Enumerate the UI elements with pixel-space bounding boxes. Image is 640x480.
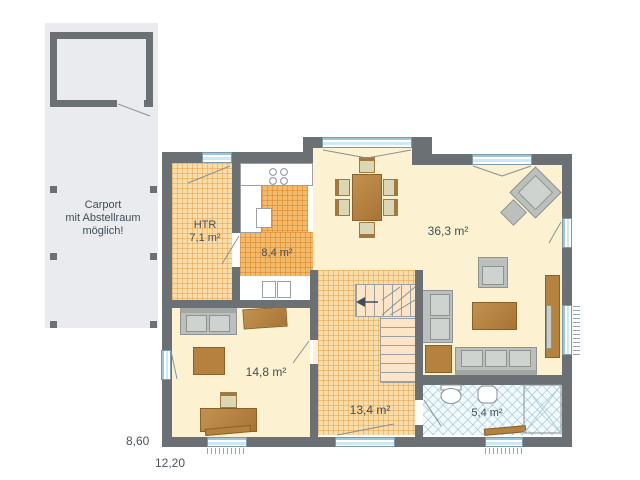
entrance-door: [335, 437, 395, 447]
office-window-bottom: [207, 437, 247, 447]
tv: [546, 305, 552, 349]
dining-window: [322, 137, 412, 148]
window-sill-hatch: [207, 448, 247, 454]
room-label-kitchen: 8,4 m²: [261, 247, 292, 259]
room-label-bath: 5,4 m²: [471, 407, 502, 419]
dimension-left-section: 8,60: [126, 434, 149, 448]
kitchen-counter-top: [240, 163, 313, 186]
desk-chair: [220, 392, 237, 408]
room-name-htr: HTR: [189, 219, 220, 232]
window-sill-hatch: [573, 305, 580, 355]
dining-chair: [359, 157, 375, 173]
bath-window-bottom: [485, 437, 523, 447]
htr-wall-right-upper: [232, 163, 240, 233]
carport-post: [150, 321, 157, 328]
loveseat-cushion: [430, 318, 450, 340]
carport-note: Carport mit Abstellraum möglich!: [65, 199, 140, 238]
room-label-hall: 13,4 m²: [350, 403, 391, 417]
exterior-wall-right: [562, 154, 572, 447]
sofa-cushion: [509, 350, 531, 367]
carport-slab: [45, 23, 158, 328]
room-label-htr: HTR 7,1 m²: [189, 219, 220, 245]
stairs-upper-run: [355, 284, 417, 317]
terrace-door: [472, 154, 532, 165]
carport-post: [150, 186, 157, 193]
floor-plan: Carport mit Abstellraum möglich! HTR 7,1…: [0, 0, 640, 480]
living-rug: [425, 345, 452, 373]
storage-room-wall-top: [50, 32, 153, 39]
dining-table: [352, 174, 382, 221]
carport-post: [50, 253, 57, 260]
storage-room-wall-bottom: [50, 100, 117, 107]
storage-room-wall-stub: [144, 100, 153, 107]
window-sill-hatch: [485, 448, 523, 454]
dimension-total-width: 12,20: [155, 456, 185, 470]
sofa-cushion: [461, 350, 483, 367]
carport-note-line3: möglich!: [65, 225, 140, 238]
dining-chair: [335, 199, 350, 216]
dining-chair: [383, 179, 398, 196]
htr-entry-door: [202, 152, 232, 163]
carport-note-line1: Carport: [65, 199, 140, 212]
storage-room-wall-left: [50, 32, 57, 107]
armchair-top-cushion: [482, 266, 504, 285]
carport-post: [50, 186, 57, 193]
storage-room-wall-right: [146, 32, 153, 107]
room-area-htr: 7,1 m²: [189, 232, 220, 245]
office-rug: [193, 347, 225, 375]
living-window-right-lower: [562, 305, 572, 355]
hall-wall-right-stub: [415, 425, 423, 437]
dining-chair: [383, 199, 398, 216]
hall-wall-left-lower: [310, 364, 318, 437]
bath-wall-top: [423, 375, 572, 385]
office-wall-top: [172, 300, 318, 308]
sofa-cushion: [485, 350, 507, 367]
loveseat-cushion: [430, 294, 450, 316]
carport-post: [150, 253, 157, 260]
dryer: [277, 281, 291, 298]
office-window-left: [161, 350, 171, 380]
kitchen-sink-block: [256, 208, 272, 228]
dining-chair: [335, 179, 350, 196]
carport-note-line2: mit Abstellraum: [65, 212, 140, 225]
washer: [262, 281, 276, 298]
exterior-wall-top-a: [162, 152, 313, 163]
office-sofa-cushion: [209, 315, 230, 332]
coffee-table: [472, 302, 517, 330]
office-sofa-cushion: [186, 315, 207, 332]
living-window-right-upper: [562, 218, 572, 248]
dining-chair: [359, 222, 375, 238]
office-board: [242, 306, 287, 329]
carport-post: [50, 321, 57, 328]
stairs-lower-run: [380, 316, 417, 383]
room-label-living: 36,3 m²: [428, 224, 469, 238]
exterior-wall-left: [162, 152, 172, 447]
hall-wall-right: [415, 270, 423, 400]
hall-wall-left-upper: [310, 270, 318, 340]
room-label-office: 14,8 m²: [246, 365, 287, 379]
